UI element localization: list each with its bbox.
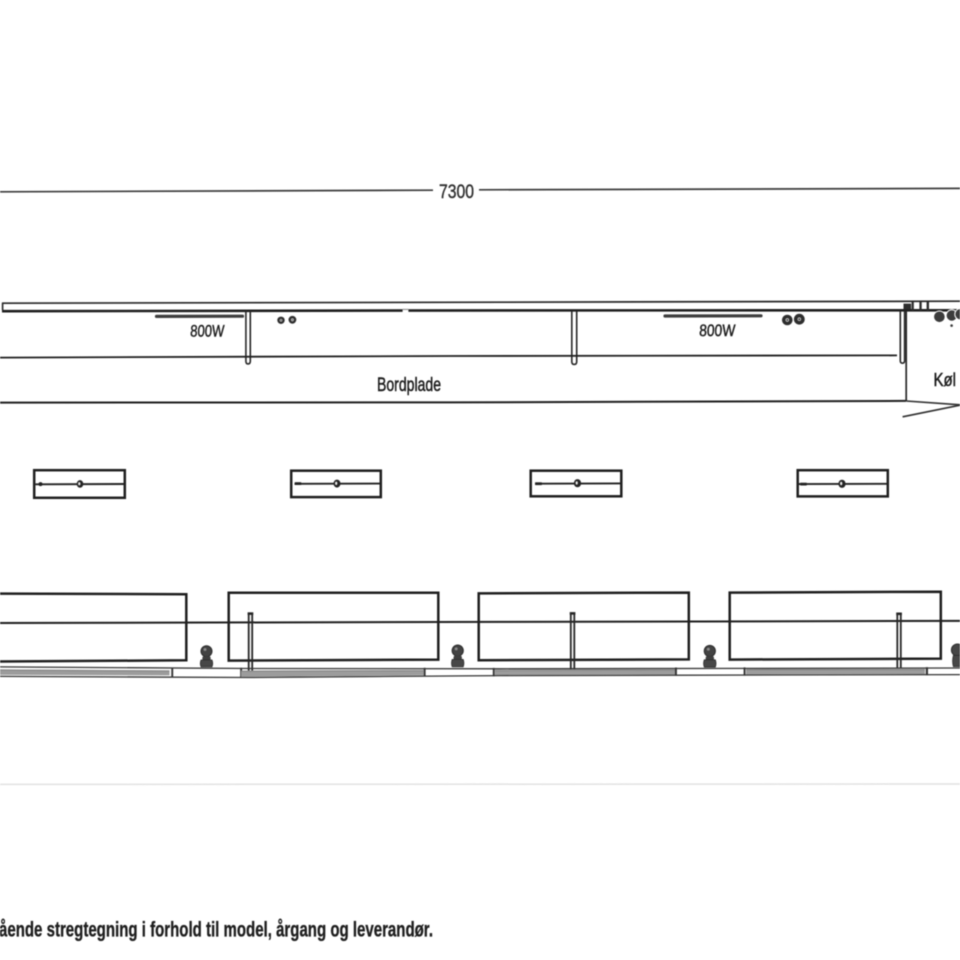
svg-text:800W: 800W: [190, 322, 225, 340]
svg-text:Bordplade: Bordplade: [377, 374, 441, 396]
svg-text:ående stregtegning i forhold t: ående stregtegning i forhold til model, …: [0, 919, 433, 942]
svg-text:7300: 7300: [439, 181, 474, 203]
svg-text:Køl: Køl: [934, 370, 957, 390]
svg-text:800W: 800W: [699, 322, 736, 340]
